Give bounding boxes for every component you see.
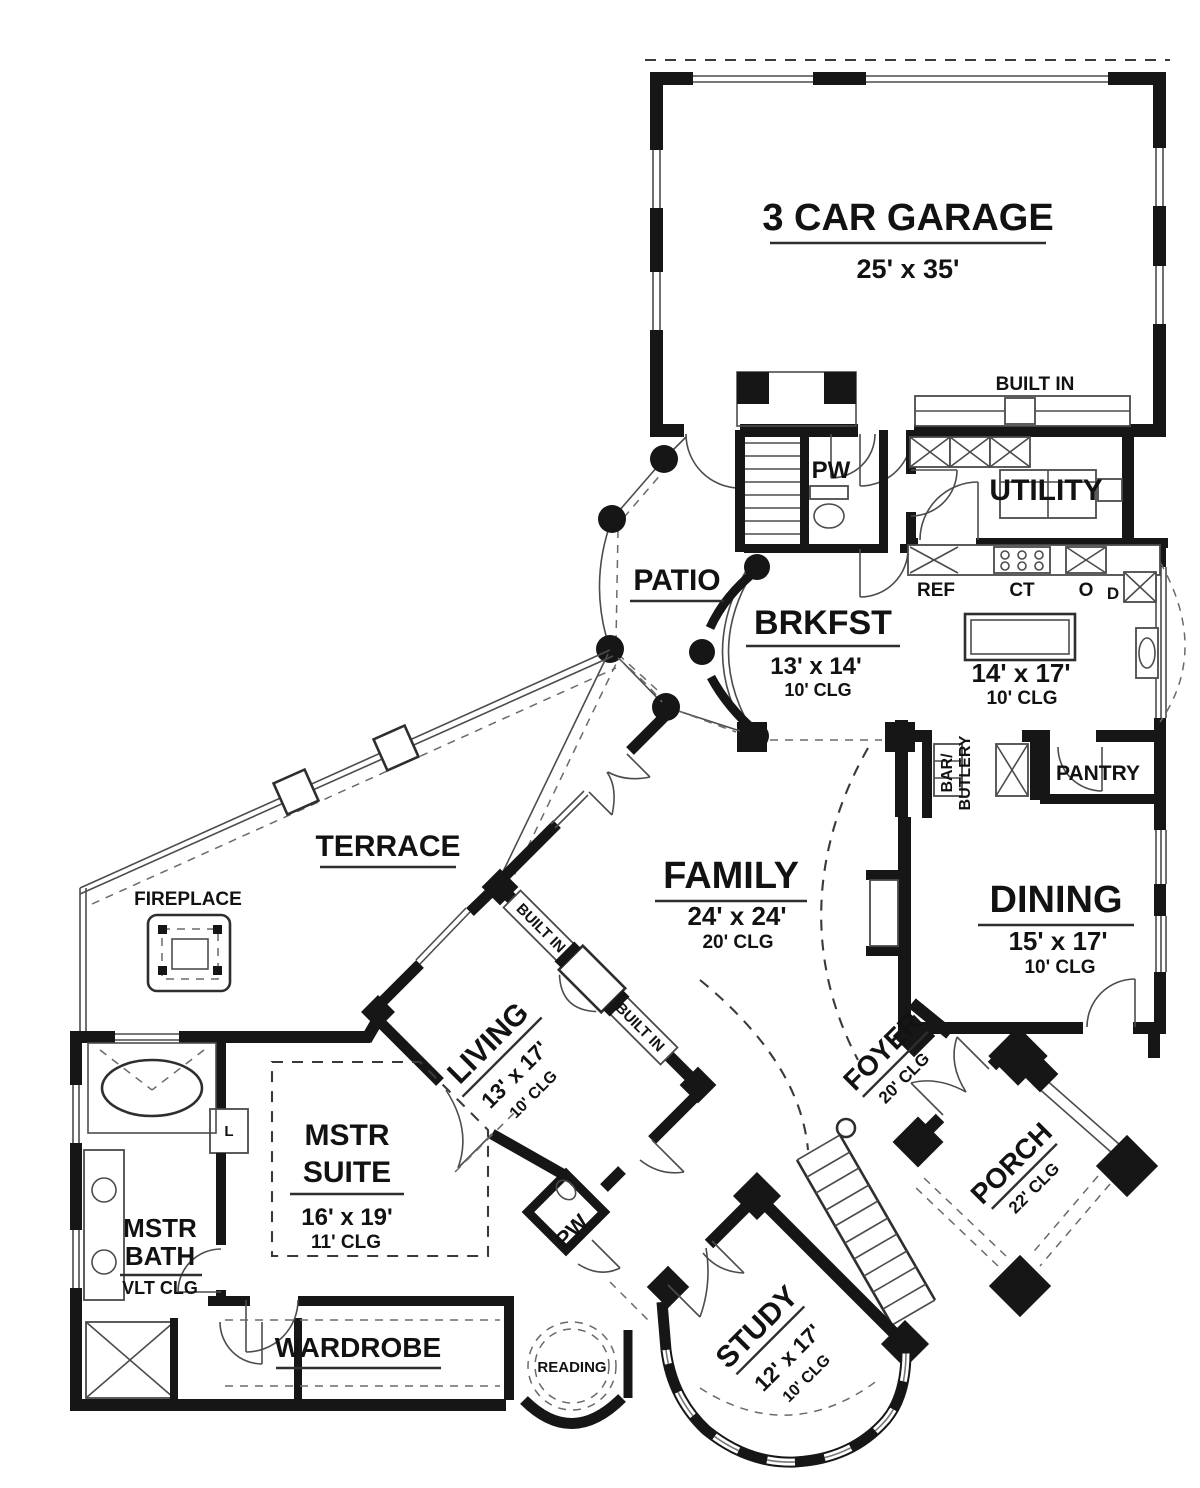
master-bath-line1: MSTR <box>123 1213 197 1243</box>
breakfast-clg: 10' CLG <box>784 680 851 700</box>
pantry-label: PANTRY <box>1056 762 1140 785</box>
dining-label: DINING <box>990 879 1123 921</box>
dining-dims: 15' x 17' <box>1008 926 1107 956</box>
dining-clg: 10' CLG <box>1024 957 1095 978</box>
master-suite-line1: MSTR <box>305 1119 390 1152</box>
ref-label: REF <box>917 580 955 601</box>
builtin-lower-label: BUILT IN <box>612 999 668 1055</box>
kitchen <box>906 545 1185 744</box>
master-suite-line2: SUITE <box>303 1156 391 1189</box>
master-suite-dims: 16' x 19' <box>301 1204 393 1231</box>
linen-label: L <box>224 1123 233 1140</box>
floor-plan: 3 CAR GARAGE 25' x 35' BUILT IN PW UTILI… <box>0 0 1200 1488</box>
garage-dims: 25' x 35' <box>857 254 960 284</box>
kitchen-clg: 10' CLG <box>986 688 1057 709</box>
garage-label: 3 CAR GARAGE <box>762 197 1053 239</box>
builtin-upper-label: BUILT IN <box>513 900 569 956</box>
oven-label: O <box>1079 580 1094 601</box>
breakfast-label: BRKFST <box>754 604 892 642</box>
family-dims: 24' x 24' <box>687 901 786 931</box>
patio-label: PATIO <box>633 564 720 597</box>
porch-label: PORCH <box>965 1117 1058 1210</box>
wardrobe-label: WARDROBE <box>275 1332 441 1363</box>
floor-plan-drawing: 3 CAR GARAGE 25' x 35' BUILT IN PW UTILI… <box>0 0 1200 1488</box>
master-bath-clg: VLT CLG <box>122 1278 198 1298</box>
powder-upper-label: PW <box>812 457 851 484</box>
fireplace-label: FIREPLACE <box>134 889 242 910</box>
breakfast-dims: 13' x 14' <box>770 653 862 680</box>
terrace-label: TERRACE <box>315 830 460 863</box>
garage-builtin-label: BUILT IN <box>996 374 1075 395</box>
drawer-label: D <box>1107 584 1119 603</box>
family-label: FAMILY <box>663 855 799 897</box>
bar-line1: BAR/ <box>939 753 956 793</box>
reading-label: READING <box>537 1359 606 1376</box>
master-suite-clg: 11' CLG <box>311 1232 381 1253</box>
kitchen-dims: 14' x 17' <box>971 658 1070 688</box>
master-bath-line2: BATH <box>125 1241 195 1271</box>
cooktop-label: CT <box>1009 580 1035 601</box>
bar-line2: BUTLERY <box>957 735 974 810</box>
family-clg: 20' CLG <box>702 932 773 953</box>
utility-label: UTILITY <box>989 474 1102 507</box>
